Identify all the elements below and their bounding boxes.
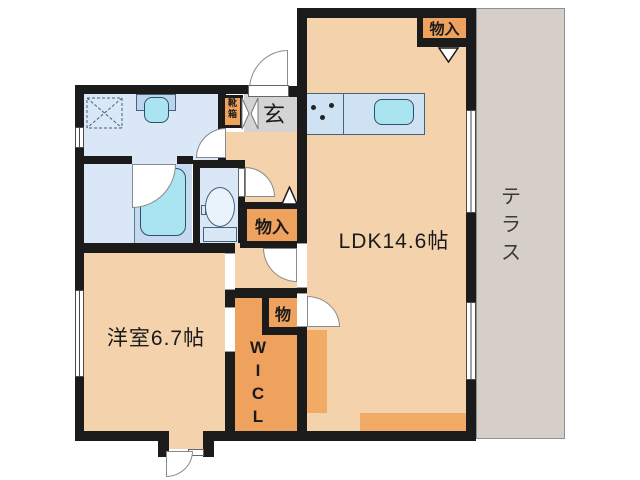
wall <box>262 327 307 335</box>
shoe-cabinet-char-1: 靴 <box>228 98 237 109</box>
wall <box>203 431 214 457</box>
wall <box>193 160 245 168</box>
small-storage-label: 物 <box>269 298 297 327</box>
hall-storage-label: 物入 <box>247 209 297 241</box>
wall <box>75 431 167 441</box>
ldk-side-counter <box>307 330 327 413</box>
wall <box>75 148 84 253</box>
wall <box>297 8 307 243</box>
ldk-label: LDK14.6帖 <box>314 226 474 254</box>
door-opening <box>297 293 307 327</box>
door-opening <box>297 243 307 288</box>
window <box>466 302 476 380</box>
closet-triangle-icon <box>438 47 459 63</box>
entrance-label: 玄 <box>258 96 290 130</box>
wic-label: W I C L <box>243 336 273 430</box>
wic-char-4: L <box>253 405 263 428</box>
kitchen-sink <box>374 99 414 125</box>
hallway-upper <box>226 132 297 160</box>
wic-char-2: I <box>256 359 261 382</box>
terrace-label: テ ラ ス <box>496 183 526 273</box>
door-leaf <box>238 168 245 197</box>
closet-triangle-icon <box>281 186 298 205</box>
wall <box>225 290 235 307</box>
wall <box>75 253 84 290</box>
wic-char-3: C <box>252 382 264 405</box>
window <box>466 110 476 213</box>
wall <box>417 38 466 47</box>
western-room-label: 洋室6.7帖 <box>76 323 236 351</box>
front-door-arc <box>249 50 288 90</box>
window <box>75 127 84 148</box>
wall <box>225 352 235 441</box>
terrace-char-1: テ <box>501 183 521 211</box>
floor-plan: テ ラ ス <box>0 0 640 480</box>
wall <box>297 332 307 441</box>
wall <box>466 8 476 110</box>
wall <box>297 8 476 18</box>
ldk-bottom-counter <box>360 413 466 431</box>
wall <box>177 156 193 164</box>
wall <box>240 241 297 248</box>
washbasin <box>144 97 169 123</box>
shoe-cabinet: 靴 箱 <box>225 98 240 125</box>
toilet-lever <box>201 205 206 215</box>
washing-machine-area-icon <box>86 97 123 129</box>
stove-burner-icon <box>320 115 325 120</box>
wall <box>193 160 200 243</box>
toilet-bowl <box>205 187 235 227</box>
shoe-cabinet-char-2: 箱 <box>228 109 237 120</box>
wall <box>75 85 84 127</box>
wall <box>75 85 248 94</box>
wall <box>84 156 132 164</box>
terrace-char-3: ス <box>501 239 521 267</box>
wall <box>75 243 235 253</box>
doorway-floor <box>169 431 203 449</box>
stove-burner-icon <box>329 103 334 108</box>
sliding-door-opening <box>225 253 235 290</box>
top-storage-label: 物入 <box>423 18 466 38</box>
wall <box>466 380 476 441</box>
kitchen-counter-divider <box>343 93 344 135</box>
toilet-tank <box>203 227 237 242</box>
wic-char-1: W <box>250 336 266 359</box>
terrace-char-2: ラ <box>501 211 521 239</box>
door-arc <box>166 451 193 477</box>
folding-door-icon <box>241 97 259 130</box>
wall <box>214 431 475 441</box>
stove-burner-icon <box>311 105 316 110</box>
